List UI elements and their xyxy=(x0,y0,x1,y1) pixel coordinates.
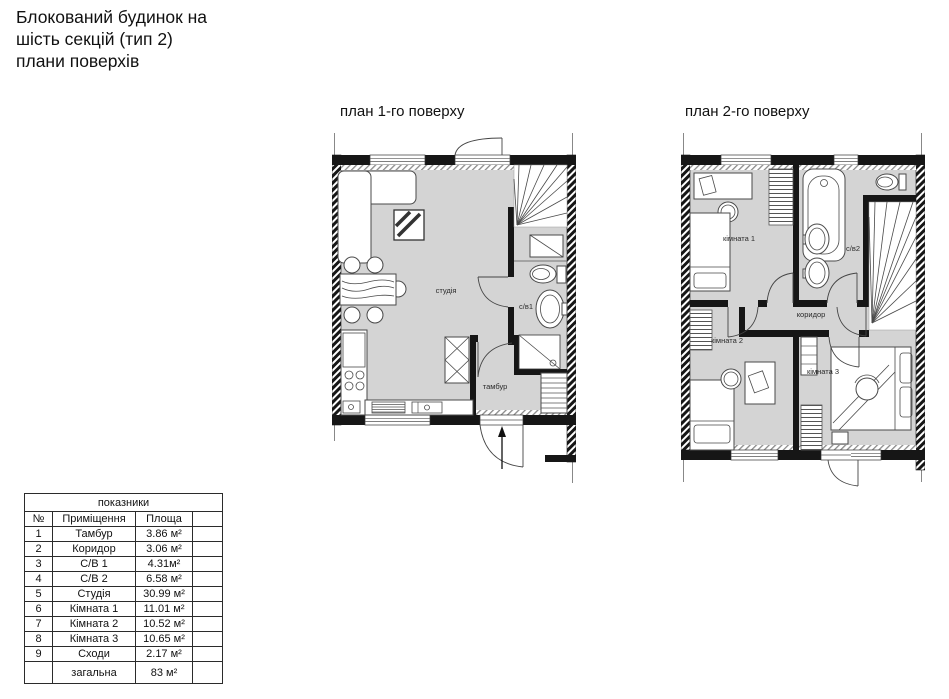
shower xyxy=(519,335,560,369)
num-cell: 6 xyxy=(25,602,53,617)
floor1-plan-drawing: студія с/в1 тамбур xyxy=(332,125,576,490)
col-header-area: Площа xyxy=(136,512,193,527)
table-title: показники xyxy=(25,494,223,512)
toilet xyxy=(530,265,566,283)
table-row: 7 Кімната 2 10.52 м² xyxy=(25,617,223,632)
area-cell: 30.99 м² xyxy=(136,587,193,602)
table-header-row: № Приміщення Площа xyxy=(25,512,223,527)
total-label: загальна xyxy=(53,662,136,684)
page-title: Блокований будинок на шість секцій (тип … xyxy=(16,6,207,72)
room3-label: кімната 3 xyxy=(807,367,839,376)
area-cell: 2.17 м² xyxy=(136,647,193,662)
floor2-plan-drawing: кімната 1 с/в2 коридор кімната 2 кімната… xyxy=(681,125,925,490)
stairs xyxy=(514,165,567,227)
table-row: 3 С/В 1 4.31м² xyxy=(25,557,223,572)
room-areas-table: показники № Приміщення Площа 1 Тамбур 3.… xyxy=(24,493,223,684)
table-title-row: показники xyxy=(25,494,223,512)
table-row: 2 Коридор 3.06 м² xyxy=(25,542,223,557)
table-row: 1 Тамбур 3.86 м² xyxy=(25,527,223,542)
window xyxy=(731,450,778,460)
toilet xyxy=(876,174,906,190)
room-cell: Кімната 1 xyxy=(53,602,136,617)
num-cell: 8 xyxy=(25,632,53,647)
num-cell: 2 xyxy=(25,542,53,557)
entrance-door xyxy=(480,425,523,469)
drawing-sheet: Блокований будинок на шість секцій (тип … xyxy=(0,0,949,699)
bed-room1 xyxy=(690,213,730,291)
num-cell: 3 xyxy=(25,557,53,572)
title-line-2: шість секцій (тип 2) xyxy=(16,28,207,50)
area-cell: 10.52 м² xyxy=(136,617,193,632)
room-cell: Сходи xyxy=(53,647,136,662)
entrance-opening xyxy=(480,415,523,425)
table-row: 4 С/В 2 6.58 м² xyxy=(25,572,223,587)
washing-machine xyxy=(530,235,563,257)
room-cell: Тамбур xyxy=(53,527,136,542)
table-row: 9 Сходи 2.17 м² xyxy=(25,647,223,662)
window xyxy=(721,155,771,165)
table-row: 5 Студія 30.99 м² xyxy=(25,587,223,602)
table-row: 8 Кімната 3 10.65 м² xyxy=(25,632,223,647)
kitchen-window xyxy=(365,415,430,425)
coffee-table xyxy=(394,210,424,240)
total-area: 83 м² xyxy=(136,662,193,684)
vestibule-label: тамбур xyxy=(483,382,508,391)
floor2-plan-title: план 2-го поверху xyxy=(685,103,809,120)
table-row: 6 Кімната 1 11.01 м² xyxy=(25,602,223,617)
window xyxy=(370,155,425,165)
room-cell: Студія xyxy=(53,587,136,602)
bath1-label: с/в1 xyxy=(519,302,533,311)
num-cell: 9 xyxy=(25,647,53,662)
room3-balcony-door xyxy=(828,460,858,486)
stairs xyxy=(869,202,916,330)
num-cell: 5 xyxy=(25,587,53,602)
wardrobe-room1 xyxy=(769,169,793,225)
studio-label: студія xyxy=(436,286,457,295)
area-cell: 10.65 м² xyxy=(136,632,193,647)
balcony-door-opening xyxy=(455,155,510,165)
table-total-row: загальна 83 м² xyxy=(25,662,223,684)
corridor-label: коридор xyxy=(797,310,826,319)
pantry-cabinet xyxy=(445,337,469,383)
title-line-3: плани поверхів xyxy=(16,50,207,72)
room1-label: кімната 1 xyxy=(723,234,755,243)
num-cell: 4 xyxy=(25,572,53,587)
room-cell: Коридор xyxy=(53,542,136,557)
area-cell: 3.06 м² xyxy=(136,542,193,557)
neighbor-wall-stub xyxy=(545,455,576,462)
area-cell: 11.01 м² xyxy=(136,602,193,617)
bed-room2 xyxy=(690,380,734,450)
num-cell: 7 xyxy=(25,617,53,632)
area-cell: 6.58 м² xyxy=(136,572,193,587)
room-cell: С/В 1 xyxy=(53,557,136,572)
wardrobe-room2 xyxy=(690,310,712,350)
title-line-1: Блокований будинок на xyxy=(16,6,207,28)
col-header-num: № xyxy=(25,512,53,527)
balcony-door xyxy=(455,138,502,155)
room-cell: С/В 2 xyxy=(53,572,136,587)
area-cell: 4.31м² xyxy=(136,557,193,572)
bath2-label: с/в2 xyxy=(846,244,860,253)
top-exterior-wall xyxy=(681,155,925,170)
entrance-arrow xyxy=(498,426,506,437)
window xyxy=(834,155,858,165)
area-cell: 3.86 м² xyxy=(136,527,193,542)
floor1-plan-title: план 1-го поверху xyxy=(340,103,464,120)
coat-rack xyxy=(541,373,567,413)
room-cell: Кімната 3 xyxy=(53,632,136,647)
wardrobe-room3 xyxy=(801,405,822,450)
room2-label: кімната 2 xyxy=(711,336,743,345)
window-and-door-opening xyxy=(821,450,881,460)
bottom-exterior-wall xyxy=(332,410,576,462)
room-cell: Кімната 2 xyxy=(53,617,136,632)
col-header-room: Приміщення xyxy=(53,512,136,527)
col-header-blank xyxy=(193,512,223,527)
insulation-strip xyxy=(690,165,916,170)
num-cell: 1 xyxy=(25,527,53,542)
